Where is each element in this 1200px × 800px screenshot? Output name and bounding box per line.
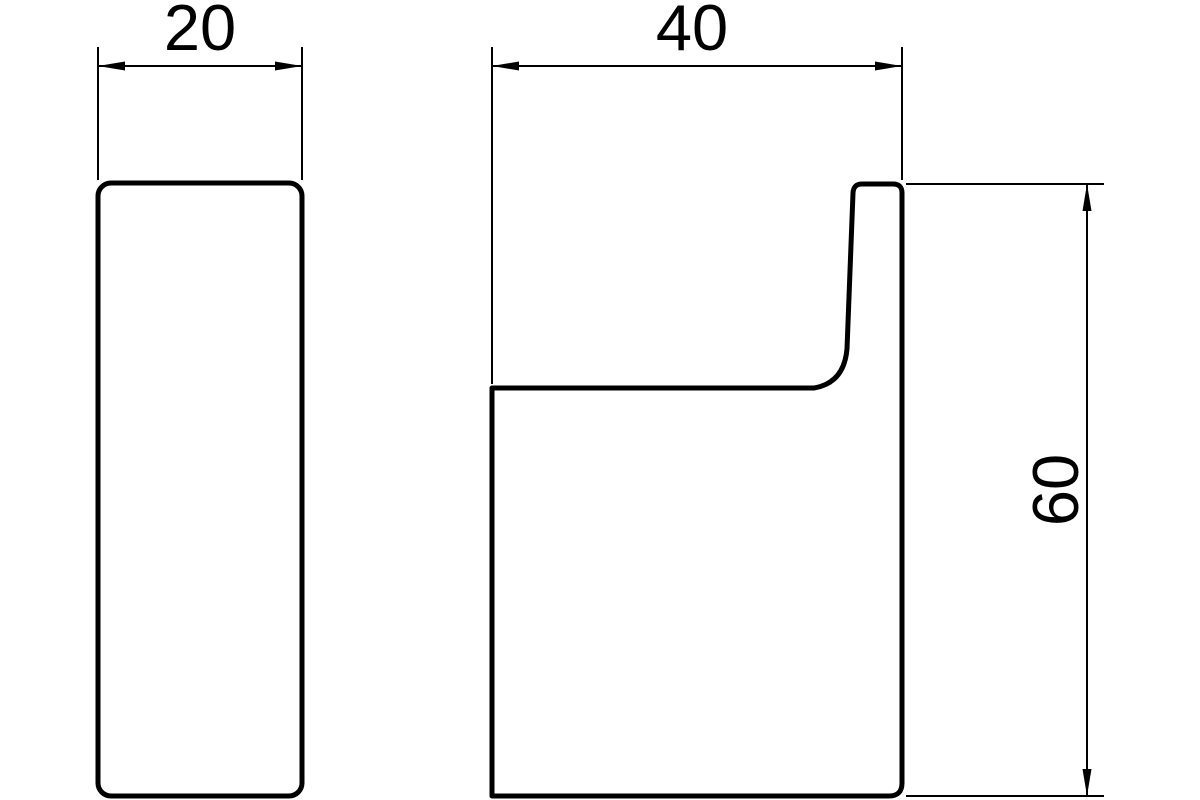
dimension-label-side-height: 60 bbox=[1019, 454, 1092, 526]
drawing-background bbox=[0, 0, 1200, 800]
dimension-label-front-width: 20 bbox=[164, 0, 236, 64]
technical-drawing: 20 40 60 bbox=[0, 0, 1200, 800]
dimension-label-side-depth: 40 bbox=[656, 0, 728, 64]
